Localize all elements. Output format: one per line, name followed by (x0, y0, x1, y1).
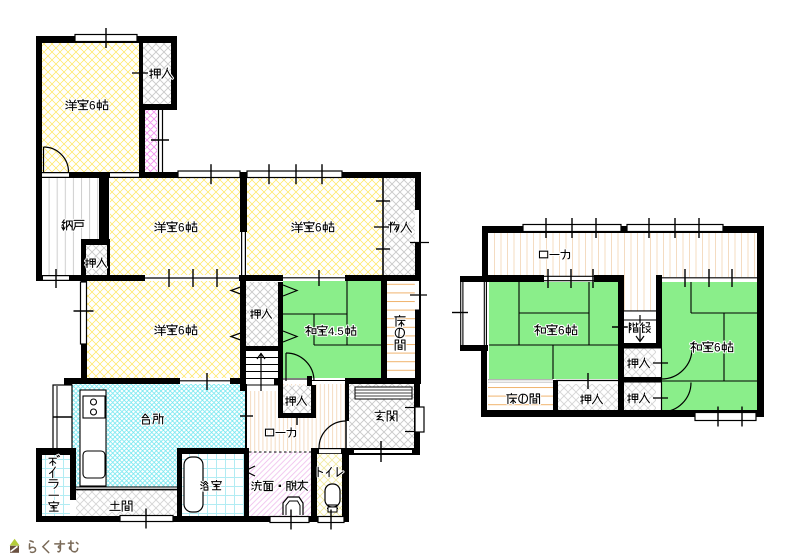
svg-text:6: 6 (178, 221, 185, 235)
svg-text:6: 6 (178, 324, 185, 338)
svg-text:6: 6 (315, 221, 322, 235)
svg-text:6: 6 (89, 99, 96, 113)
svg-text:6: 6 (558, 324, 565, 338)
svg-text:6: 6 (714, 341, 721, 355)
svg-text:4.5: 4.5 (328, 326, 344, 338)
